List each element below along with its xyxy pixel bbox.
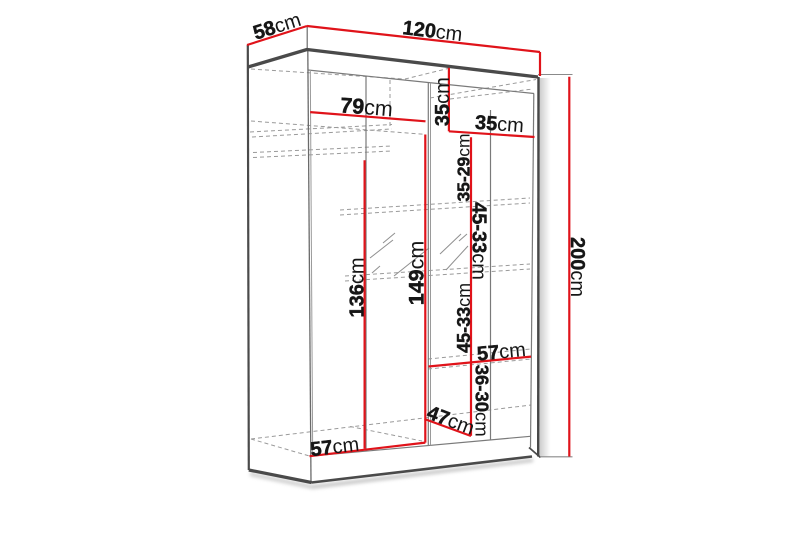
svg-text:35cm: 35cm bbox=[474, 112, 524, 137]
svg-text:149cm: 149cm bbox=[405, 241, 429, 306]
svg-text:47cm: 47cm bbox=[424, 402, 478, 440]
svg-text:57cm: 57cm bbox=[309, 434, 360, 462]
svg-text:200cm: 200cm bbox=[566, 237, 588, 297]
svg-text:45-33cm: 45-33cm bbox=[454, 283, 474, 353]
svg-text:35cm: 35cm bbox=[432, 77, 454, 126]
svg-text:57cm: 57cm bbox=[476, 339, 527, 366]
svg-text:120cm: 120cm bbox=[401, 17, 463, 46]
svg-text:58cm: 58cm bbox=[251, 9, 304, 45]
svg-text:136cm: 136cm bbox=[347, 257, 369, 317]
svg-text:79cm: 79cm bbox=[339, 93, 393, 121]
svg-text:45-33cm: 45-33cm bbox=[468, 202, 490, 280]
svg-text:35-29cm: 35-29cm bbox=[454, 133, 474, 201]
